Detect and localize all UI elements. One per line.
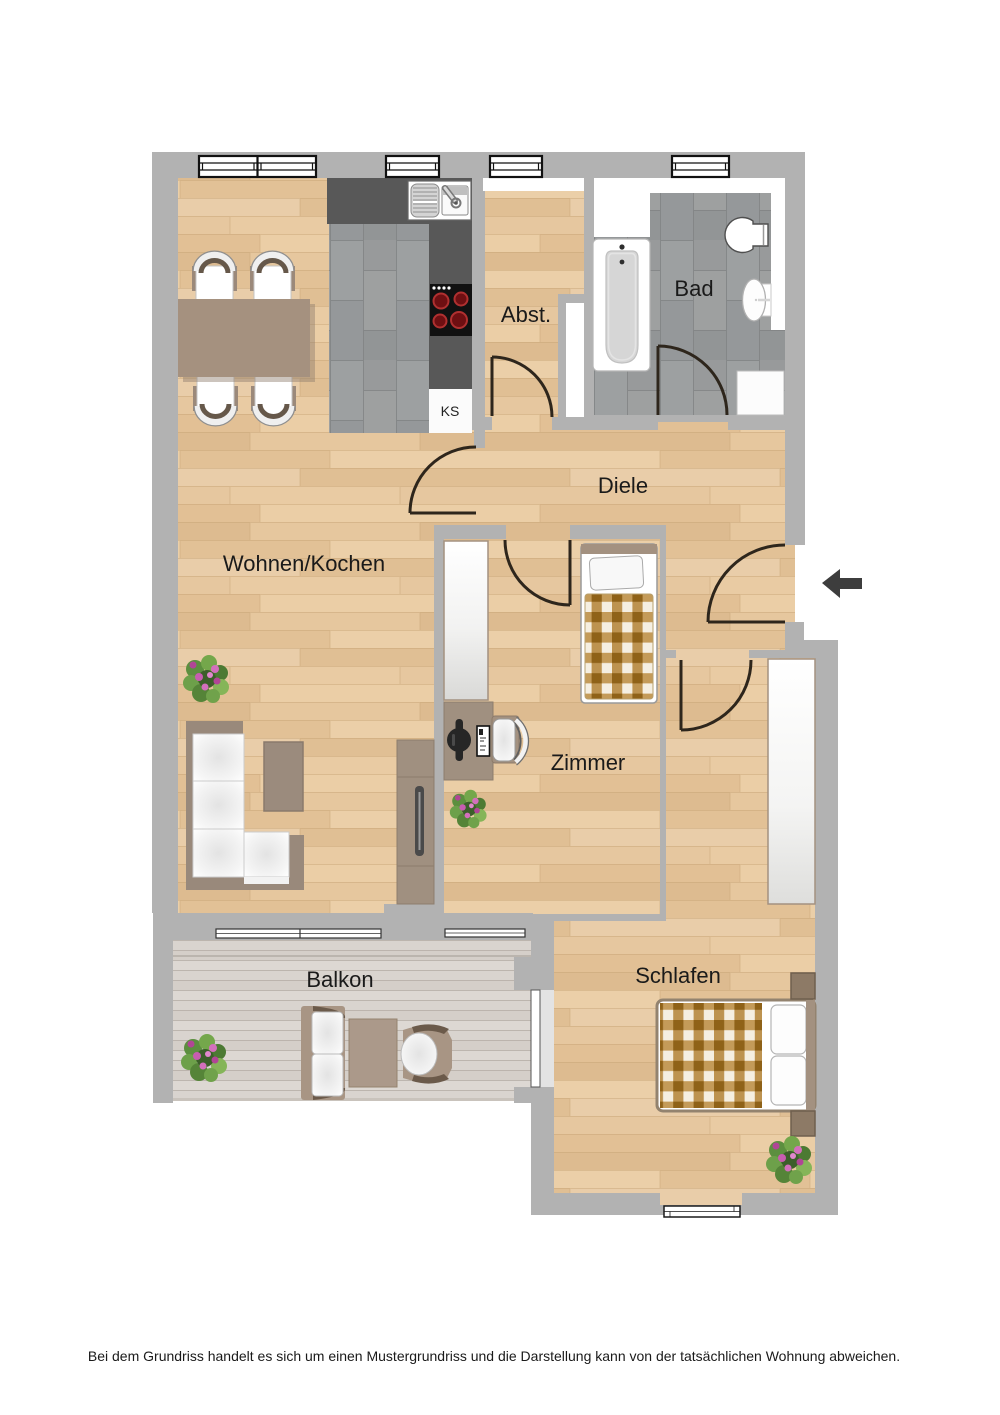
svg-text:Schlafen: Schlafen <box>635 963 721 988</box>
svg-text:Bei dem Grundriss handelt es s: Bei dem Grundriss handelt es sich um ein… <box>88 1348 900 1364</box>
svg-text:Balkon: Balkon <box>306 967 373 992</box>
svg-text:Bad: Bad <box>674 276 713 301</box>
svg-text:Zimmer: Zimmer <box>551 750 626 775</box>
svg-text:Abst.: Abst. <box>501 302 551 327</box>
svg-text:Diele: Diele <box>598 473 648 498</box>
svg-text:KS: KS <box>441 403 460 419</box>
svg-text:Wohnen/Kochen: Wohnen/Kochen <box>223 551 385 576</box>
